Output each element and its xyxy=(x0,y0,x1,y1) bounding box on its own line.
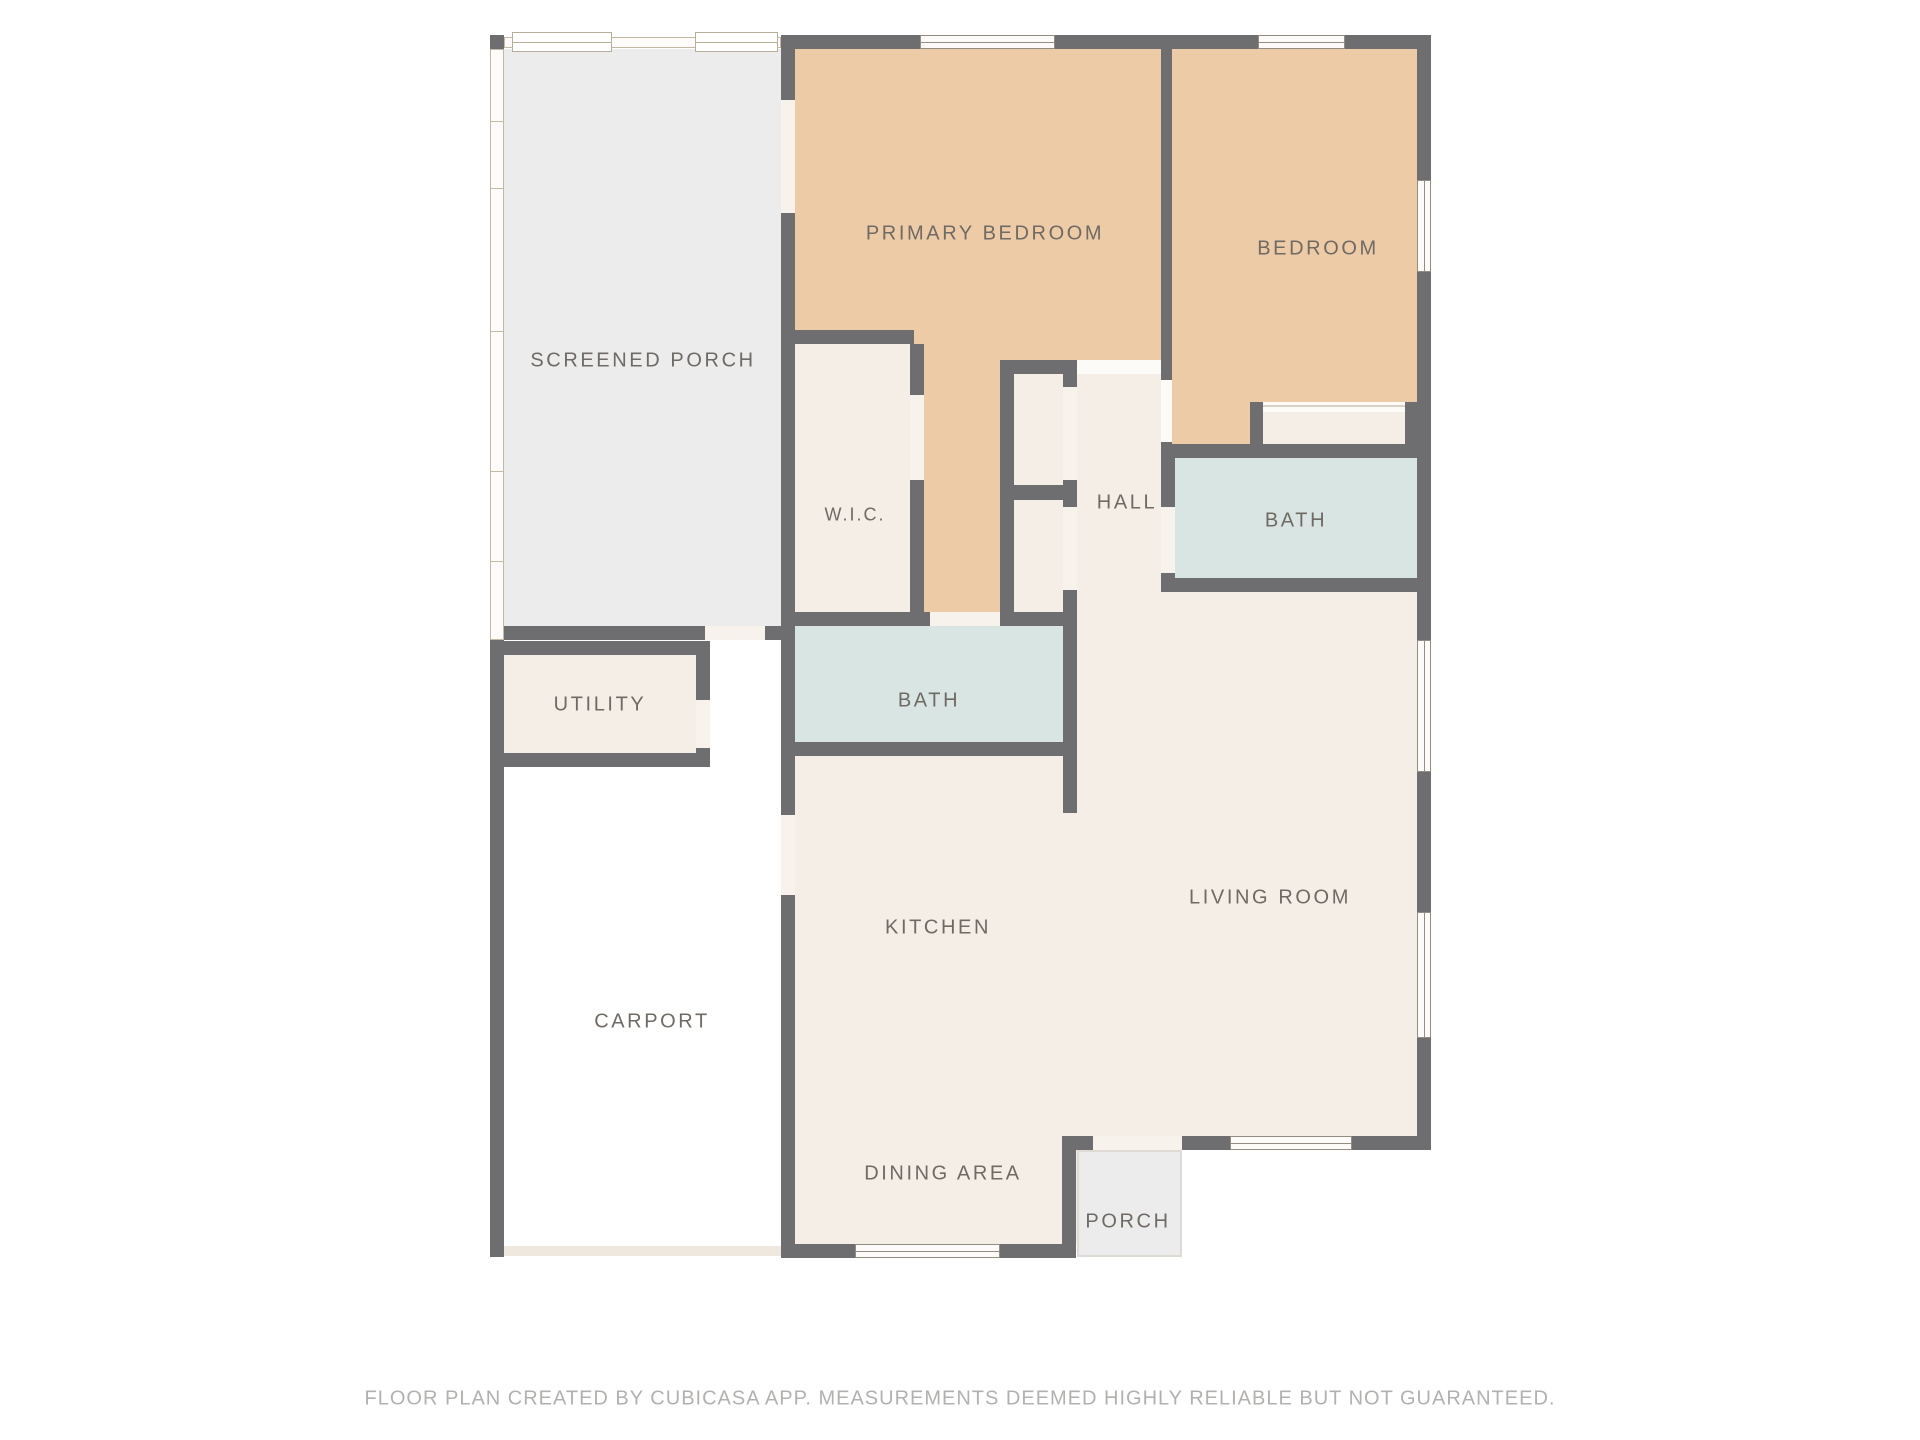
wall xyxy=(781,330,914,344)
porch-window xyxy=(695,32,778,52)
bedroom-closet-slider xyxy=(1263,402,1405,412)
wall xyxy=(1063,590,1077,612)
footer-disclaimer: FLOOR PLAN CREATED BY CUBICASA APP. MEAS… xyxy=(365,1388,1556,1411)
room-bedroom-floor xyxy=(1172,49,1417,402)
wall xyxy=(696,655,710,700)
door-utility xyxy=(696,700,710,748)
wall xyxy=(1063,480,1077,507)
wall xyxy=(1063,612,1077,813)
opening-primary-to-hall xyxy=(1077,360,1161,374)
floor-plan-canvas: SCREENED PORCH PRIMARY BEDROOM BEDROOM W… xyxy=(0,0,1920,1440)
hall-closet-upper-floor xyxy=(1014,374,1063,485)
wall xyxy=(1405,402,1417,444)
wall xyxy=(1000,360,1077,374)
room-screened-porch-floor xyxy=(504,49,781,626)
porch-window xyxy=(512,32,612,52)
wall xyxy=(1417,772,1431,912)
wall xyxy=(1417,1038,1431,1150)
room-porch-floor xyxy=(1077,1150,1182,1257)
wall xyxy=(1161,444,1417,458)
wall xyxy=(1161,578,1431,592)
wall xyxy=(781,1244,855,1258)
wall xyxy=(781,35,920,49)
wall xyxy=(781,640,795,815)
wall xyxy=(1352,1136,1431,1150)
room-label-dining-area: DINING AREA xyxy=(864,1163,1022,1186)
room-bath-middle-floor xyxy=(795,626,1063,742)
room-label-wic: W.I.C. xyxy=(825,505,886,526)
wall xyxy=(1161,49,1172,360)
door-hall-closet-upper xyxy=(1063,387,1077,480)
room-label-porch: PORCH xyxy=(1085,1211,1170,1234)
porch-screen-wall-left xyxy=(490,49,504,640)
room-label-screened-porch: SCREENED PORCH xyxy=(530,350,755,373)
room-label-primary-bedroom: PRIMARY BEDROOM xyxy=(866,223,1104,246)
wall xyxy=(490,753,710,767)
door-bedroom xyxy=(1161,380,1172,442)
room-label-bath-hall: BATH xyxy=(1265,510,1327,533)
wall xyxy=(910,344,924,395)
wall xyxy=(910,480,924,612)
window-living-right-upper xyxy=(1417,640,1431,772)
wall xyxy=(1055,35,1258,49)
room-primary-bedroom-floor xyxy=(795,49,1161,330)
wall xyxy=(1161,360,1172,380)
wall xyxy=(781,49,795,100)
hall-closet-lower-floor xyxy=(1014,500,1063,612)
wall xyxy=(1062,1136,1076,1258)
wall xyxy=(1417,35,1431,180)
primary-bedroom-floor-strip xyxy=(1000,330,1161,360)
wall xyxy=(1000,374,1014,612)
door-porch-bottom xyxy=(705,626,765,640)
carport-edge-line xyxy=(504,1246,781,1256)
room-wic-floor xyxy=(795,344,910,612)
room-label-carport: CARPORT xyxy=(594,1011,710,1034)
room-label-living-room: LIVING ROOM xyxy=(1189,887,1351,910)
room-label-hall: HALL xyxy=(1097,492,1157,515)
window-bedroom-top xyxy=(1258,35,1345,49)
wall xyxy=(490,640,504,1257)
door-carport-to-kitchen xyxy=(781,815,795,895)
window-dining-bottom xyxy=(855,1244,1000,1258)
door-hall-closet-lower xyxy=(1063,507,1077,590)
wall xyxy=(490,626,705,640)
room-label-bedroom: BEDROOM xyxy=(1257,238,1379,261)
bedroom-vestibule-floor xyxy=(1172,402,1250,444)
window-living-right-lower xyxy=(1417,912,1431,1038)
wall xyxy=(490,641,710,655)
window-primary-bedroom-top xyxy=(920,35,1055,49)
wall xyxy=(490,35,504,49)
room-living-room-floor xyxy=(1077,592,1417,1136)
wall xyxy=(781,742,1077,756)
window-living-bottom xyxy=(1230,1136,1352,1150)
door-bath-middle xyxy=(930,612,1000,626)
wall xyxy=(1161,458,1175,507)
wall xyxy=(1182,1136,1230,1150)
wall xyxy=(1062,1136,1093,1150)
door-porch-to-primary-bedroom xyxy=(781,100,795,213)
bedroom-closet-floor xyxy=(1263,412,1405,444)
room-label-bath-middle: BATH xyxy=(898,690,960,713)
wall xyxy=(781,612,930,626)
wall xyxy=(781,895,795,1258)
wall xyxy=(1250,402,1263,444)
wall xyxy=(781,213,795,626)
door-bath-hall xyxy=(1161,507,1175,573)
bedroom-closet-slider-line xyxy=(1263,405,1405,407)
room-label-utility: UTILITY xyxy=(554,694,647,717)
door-living-to-porch xyxy=(1093,1136,1182,1150)
window-bedroom-right xyxy=(1417,180,1431,272)
door-wic xyxy=(910,395,924,480)
wall xyxy=(1063,374,1077,387)
room-label-kitchen: KITCHEN xyxy=(885,917,991,940)
wall xyxy=(765,626,795,640)
